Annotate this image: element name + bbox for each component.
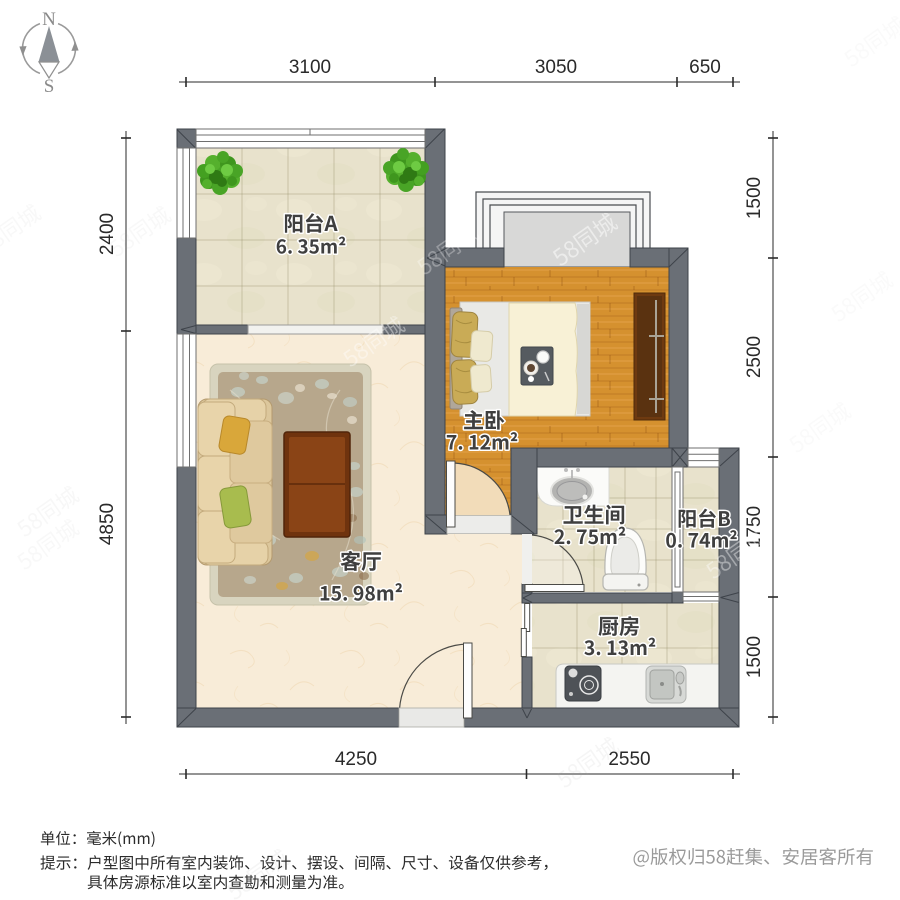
svg-text:2500: 2500 xyxy=(744,336,765,378)
svg-text:2400: 2400 xyxy=(97,213,118,255)
svg-text:1500: 1500 xyxy=(744,177,765,219)
svg-text:4250: 4250 xyxy=(335,749,377,770)
svg-text:3100: 3100 xyxy=(289,57,331,78)
svg-text:N: N xyxy=(42,9,56,30)
svg-text:4850: 4850 xyxy=(97,503,118,545)
svg-text:3050: 3050 xyxy=(535,57,577,78)
svg-text:1500: 1500 xyxy=(744,636,765,678)
svg-text:650: 650 xyxy=(689,57,721,78)
svg-text:S: S xyxy=(44,76,55,97)
